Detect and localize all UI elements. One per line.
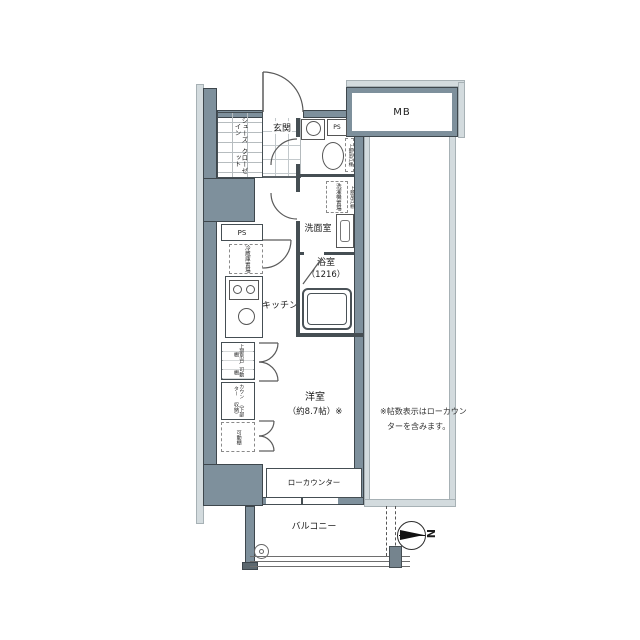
low-counter-label: ローカウンター (268, 477, 360, 488)
balcony-window-mullion (301, 497, 303, 505)
partition-washroom-bath-b (324, 252, 354, 255)
pipe-space-top: PS (327, 119, 347, 136)
toilet-basin-icon (306, 121, 321, 136)
north-label: N (423, 529, 437, 541)
footnote-line2: ターを含みます。 (380, 419, 496, 434)
balcony-partition-dash-left (386, 506, 387, 556)
balcony-label: バルコニー (284, 519, 344, 532)
partition-hall-west-b (296, 164, 300, 192)
vanity-bowl (340, 220, 350, 242)
shoes-closet-label: シューズイン クローゼット (221, 114, 259, 176)
drain-icon-inner (259, 549, 264, 554)
wall-corner-block (203, 464, 263, 506)
exterior-band-neighbor (449, 133, 456, 505)
genkan-label: 玄関 (264, 121, 300, 133)
upper-shelf-cabinet-label: 上部吊戸棚 可動棚 (223, 343, 253, 379)
bathroom-label: 浴室 （1216） (298, 256, 354, 282)
fridge-space-label: 冷蔵庫 置場 (231, 245, 261, 273)
meter-box-label: MB (393, 107, 411, 118)
wall-left (203, 88, 217, 506)
washroom-label: 洗面室 (296, 221, 340, 233)
wall-bottom-right (336, 497, 364, 505)
balcony-partition-block (389, 546, 402, 568)
toilet-upper-cabinet-label: 上部吊戸棚 (346, 139, 353, 171)
bathtub-inner (307, 293, 347, 325)
floor-plan: MB シューズイン クローゼット 玄関 PS 冷蔵庫 置場 キッチン PS (0, 0, 640, 640)
balcony-railing (250, 556, 410, 571)
laundry-upper-cabinet-label: 上部吊戸棚 (348, 181, 354, 213)
stove-burner-icon (246, 285, 255, 294)
sink-icon (238, 308, 255, 325)
laundry-space-label: 洗濯機 置場 (327, 182, 347, 212)
meter-box-interior: MB (352, 93, 452, 131)
wall-shaft-block (203, 178, 255, 222)
wall-right (354, 131, 364, 505)
room-door-icon (263, 240, 291, 268)
partition-hall-west-a (296, 118, 300, 137)
footnote: ※帖数表示はローカウン ターを含みます。 (380, 404, 496, 436)
stove-burner-icon (233, 285, 242, 294)
cabinet-double-door-bottom-icon (259, 421, 274, 451)
counter-storage-label: カウンター （下部収納） (223, 383, 253, 419)
exterior-band-mb-top (346, 80, 465, 87)
exterior-band-bottom (364, 499, 456, 507)
toilet-icon (322, 142, 344, 170)
partition-toilet-washroom (300, 174, 354, 177)
entrance-door-icon (263, 72, 303, 112)
exterior-band-right (364, 133, 370, 501)
north-arrow-triangle-icon (400, 530, 424, 540)
wall-top-right (303, 110, 347, 118)
partition-bath-room (296, 333, 364, 337)
room-label: 洋室 （約8.7帖）※ (272, 390, 358, 420)
partition-washroom-bath-a (300, 252, 304, 255)
movable-shelf-label: 可動棚 (223, 423, 253, 451)
footnote-line1: ※帖数表示はローカウン (380, 404, 496, 419)
exterior-band-mb-right (458, 82, 465, 138)
cabinet-double-door-top-icon (259, 343, 278, 381)
pipe-space-left: PS (221, 224, 263, 241)
washroom-door-icon (271, 193, 297, 219)
